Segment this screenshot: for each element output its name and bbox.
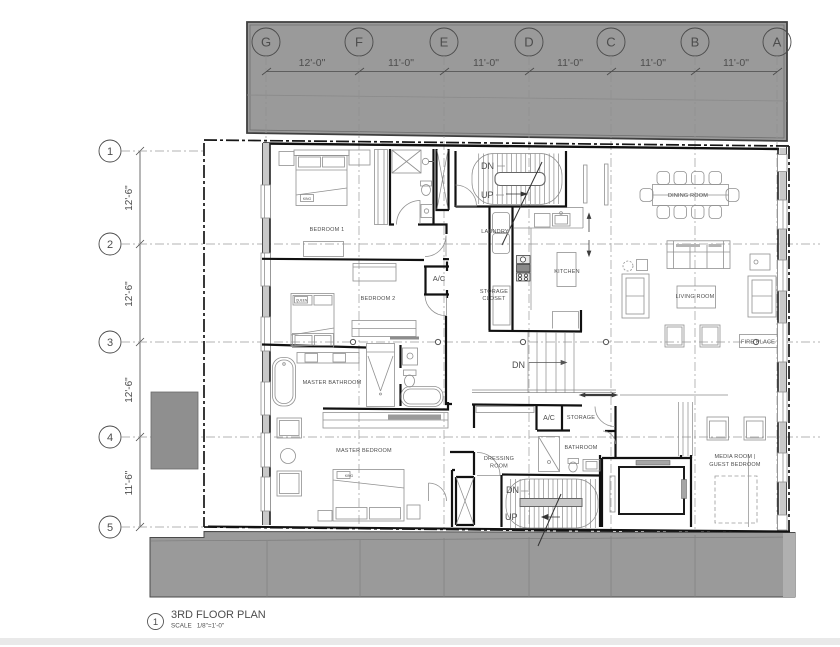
svg-text:12'-6": 12'-6" xyxy=(124,377,135,403)
svg-text:A: A xyxy=(773,35,782,50)
svg-text:KITCHEN: KITCHEN xyxy=(554,269,580,275)
svg-text:A/C: A/C xyxy=(433,274,446,283)
svg-text:12'-0": 12'-0" xyxy=(299,57,326,69)
svg-text:3: 3 xyxy=(107,337,113,349)
svg-text:GUEST BEDROOM: GUEST BEDROOM xyxy=(709,462,761,468)
svg-text:FIRE PLACE: FIRE PLACE xyxy=(741,340,775,346)
svg-text:11'-0": 11'-0" xyxy=(473,57,499,69)
svg-text:B: B xyxy=(691,35,700,50)
svg-text:CLOSET: CLOSET xyxy=(482,296,506,302)
svg-text:DN: DN xyxy=(506,485,519,495)
svg-text:4: 4 xyxy=(107,432,113,444)
svg-text:MASTER BEDROOM: MASTER BEDROOM xyxy=(336,448,392,454)
svg-text:G: G xyxy=(261,35,271,50)
svg-text:C: C xyxy=(606,35,615,50)
svg-text:DN: DN xyxy=(481,161,494,171)
svg-text:12'-6": 12'-6" xyxy=(124,185,135,211)
svg-text:STORAGE: STORAGE xyxy=(567,415,595,421)
svg-text:11'-6": 11'-6" xyxy=(124,470,135,495)
svg-text:BEDROOM 1: BEDROOM 1 xyxy=(310,227,345,233)
svg-text:MASTER BATHROOM: MASTER BATHROOM xyxy=(303,380,362,386)
svg-text:STORAGE: STORAGE xyxy=(480,289,508,295)
svg-text:BEDROOM 2: BEDROOM 2 xyxy=(361,296,396,302)
svg-text:DN: DN xyxy=(512,360,525,370)
svg-text:1: 1 xyxy=(107,146,113,158)
svg-text:1: 1 xyxy=(153,617,158,628)
svg-text:KING: KING xyxy=(345,474,354,478)
svg-text:UP: UP xyxy=(481,190,494,200)
svg-text:SCALE 1/8"=1'-0": SCALE 1/8"=1'-0" xyxy=(171,623,224,630)
svg-text:MEDIA ROOM |: MEDIA ROOM | xyxy=(714,454,755,460)
svg-text:ROOM: ROOM xyxy=(490,464,508,470)
svg-text:2: 2 xyxy=(107,239,113,251)
svg-text:LIVING ROOM: LIVING ROOM xyxy=(676,294,715,300)
svg-text:F: F xyxy=(355,35,363,50)
svg-text:5: 5 xyxy=(107,522,113,534)
svg-text:QUEEN: QUEEN xyxy=(296,299,308,303)
svg-text:11'-0": 11'-0" xyxy=(640,57,666,69)
svg-text:BATHROOM: BATHROOM xyxy=(565,445,598,451)
svg-text:LAUNDRY: LAUNDRY xyxy=(481,229,509,235)
svg-text:11'-0": 11'-0" xyxy=(723,57,749,69)
svg-text:12'-6": 12'-6" xyxy=(124,281,135,307)
svg-text:E: E xyxy=(440,35,449,50)
svg-text:DINING ROOM: DINING ROOM xyxy=(668,193,708,199)
svg-text:11'-0": 11'-0" xyxy=(388,57,414,69)
svg-text:11'-0": 11'-0" xyxy=(557,57,583,69)
svg-text:UP: UP xyxy=(505,512,518,522)
svg-text:D: D xyxy=(524,35,533,50)
svg-text:A/C: A/C xyxy=(543,415,555,422)
svg-text:DRESSING: DRESSING xyxy=(484,456,514,462)
svg-text:KING: KING xyxy=(303,197,312,201)
svg-text:3RD FLOOR PLAN: 3RD FLOOR PLAN xyxy=(171,609,266,621)
